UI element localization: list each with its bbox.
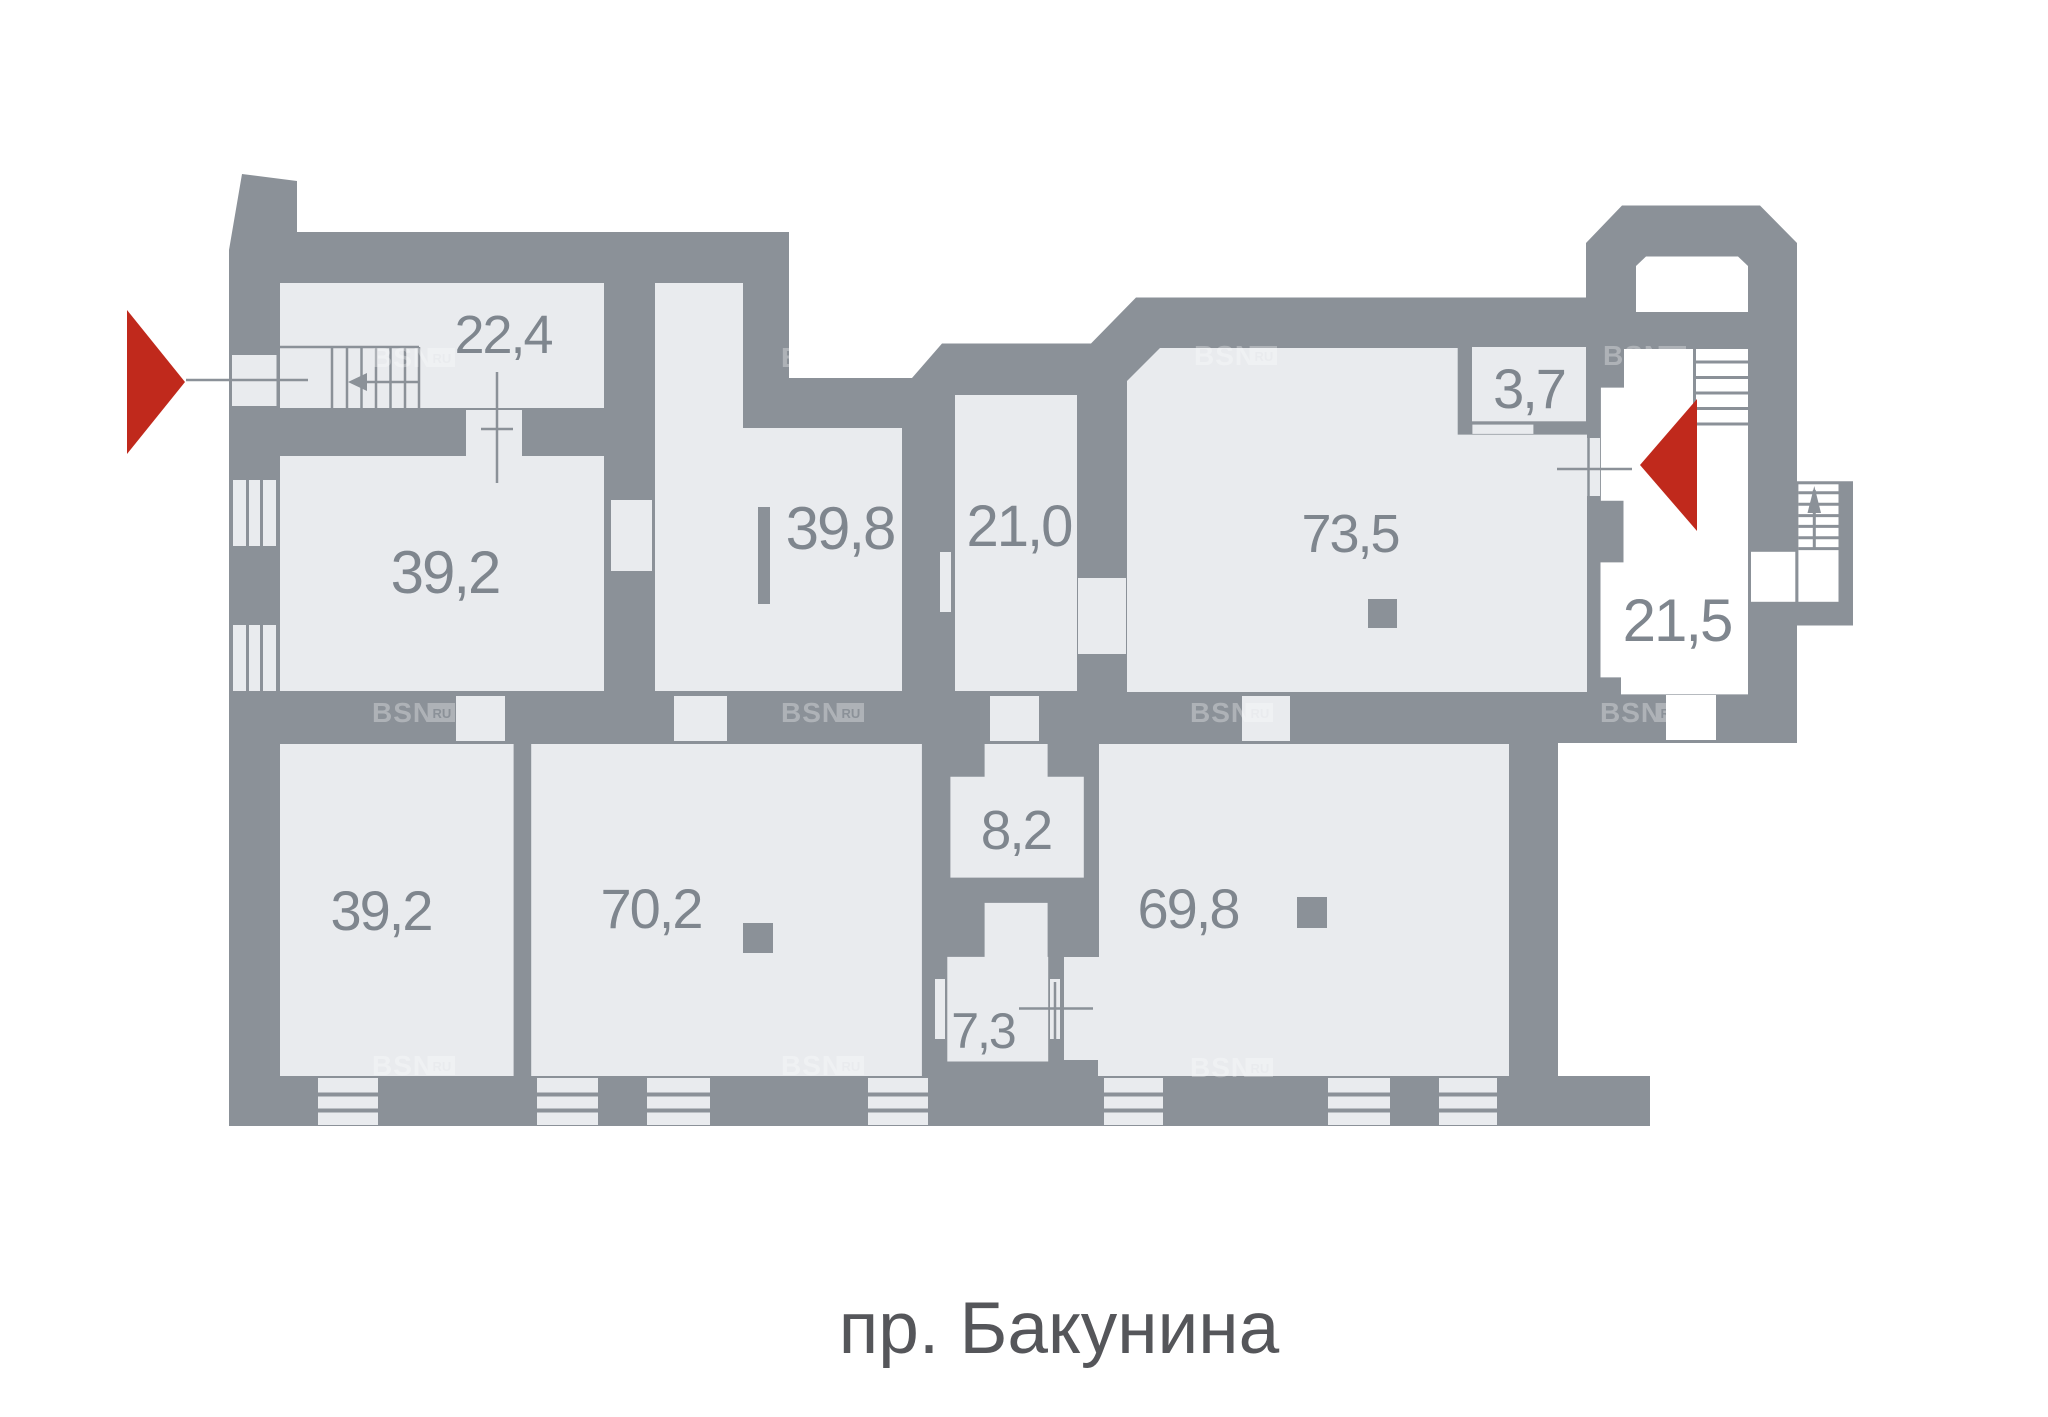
svg-text:3,7: 3,7 xyxy=(1493,357,1565,420)
svg-text:22,4: 22,4 xyxy=(454,305,552,365)
svg-text:39,2: 39,2 xyxy=(391,539,500,606)
svg-text:7,3: 7,3 xyxy=(951,1003,1015,1059)
svg-text:39,8: 39,8 xyxy=(786,495,895,562)
svg-text:70,2: 70,2 xyxy=(601,877,702,940)
svg-text:пр. Бакунина: пр. Бакунина xyxy=(839,1288,1280,1369)
svg-text:69,8: 69,8 xyxy=(1138,877,1239,940)
svg-text:21,5: 21,5 xyxy=(1623,587,1732,654)
svg-text:21,0: 21,0 xyxy=(967,494,1072,559)
svg-text:39,2: 39,2 xyxy=(331,879,432,942)
svg-text:73,5: 73,5 xyxy=(1301,504,1398,564)
svg-text:8,2: 8,2 xyxy=(981,799,1051,861)
